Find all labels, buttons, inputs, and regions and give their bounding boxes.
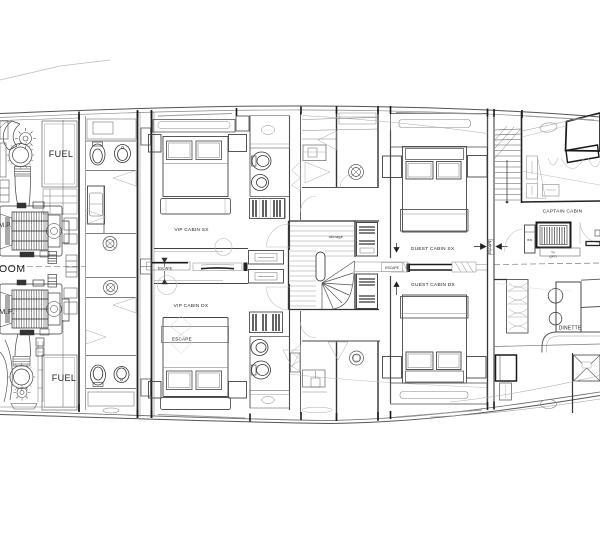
svg-text:B.B.: B.B. xyxy=(527,238,533,242)
svg-text:DINETTE: DINETTE xyxy=(559,326,582,332)
svg-text:ESCAPE: ESCAPE xyxy=(488,239,492,253)
svg-text:VIP CABIN SX: VIP CABIN SX xyxy=(174,227,209,233)
svg-text:GUEST CABIN SX: GUEST CABIN SX xyxy=(411,246,455,252)
svg-text:FUEL: FUEL xyxy=(49,149,74,159)
svg-text:FUEL: FUEL xyxy=(52,373,77,383)
svg-text:M.P.: M.P. xyxy=(0,307,15,316)
svg-text:(2FT): (2FT) xyxy=(549,255,556,259)
svg-text:storage: storage xyxy=(329,235,343,239)
svg-text:ESCAPE: ESCAPE xyxy=(172,337,192,342)
svg-text:VIP CABIN DX: VIP CABIN DX xyxy=(174,303,209,309)
svg-text:ESCAPE: ESCAPE xyxy=(385,266,399,270)
svg-text:M.P.: M.P. xyxy=(0,223,12,229)
svg-text:ESCAPE: ESCAPE xyxy=(158,266,173,270)
svg-text:GUEST CABIN DX: GUEST CABIN DX xyxy=(411,282,455,288)
svg-text:OOM: OOM xyxy=(0,263,26,275)
svg-text:CAPTAIN CABIN: CAPTAIN CABIN xyxy=(543,209,583,215)
